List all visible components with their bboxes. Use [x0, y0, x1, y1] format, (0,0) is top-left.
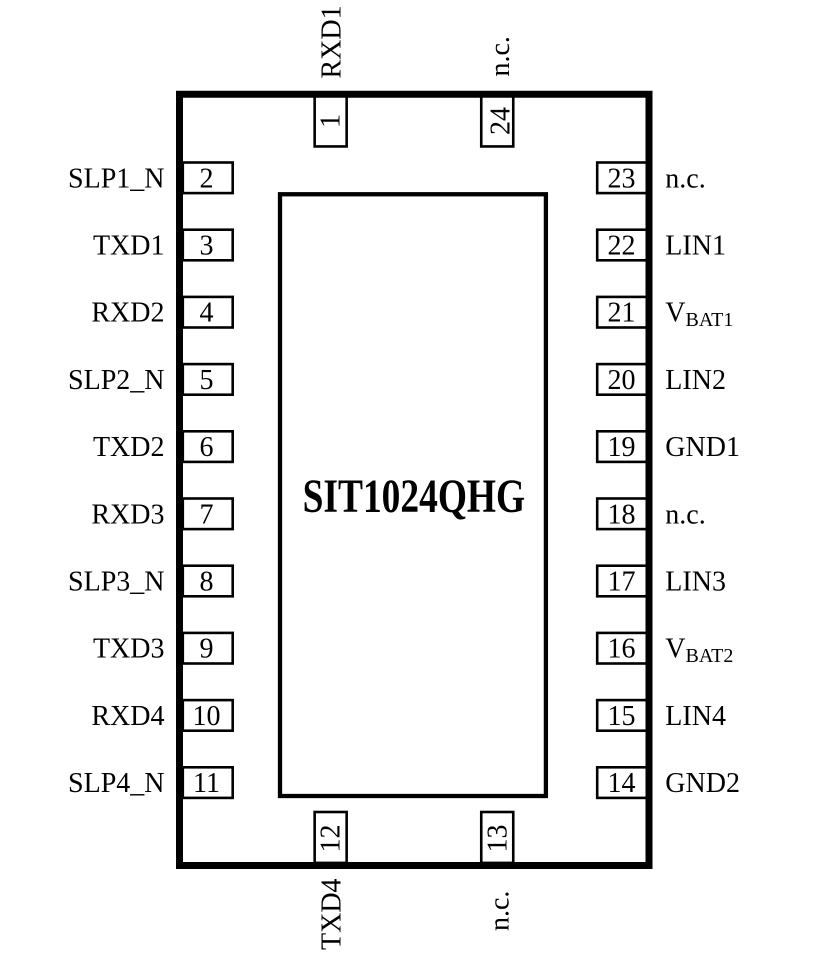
svg-text:1: 1	[316, 114, 347, 128]
svg-text:LIN1: LIN1	[665, 231, 726, 262]
svg-text:RXD3: RXD3	[91, 499, 164, 530]
svg-text:5: 5	[200, 365, 214, 396]
svg-text:9: 9	[200, 634, 214, 665]
svg-text:18: 18	[608, 499, 636, 530]
svg-text:6: 6	[200, 432, 214, 463]
svg-text:SIT1024QHG: SIT1024QHG	[303, 471, 526, 523]
svg-text:8: 8	[200, 567, 214, 598]
svg-text:LIN3: LIN3	[665, 567, 726, 598]
svg-text:4: 4	[200, 298, 214, 329]
svg-text:n.c.: n.c.	[665, 499, 705, 530]
svg-text:24: 24	[485, 107, 516, 135]
svg-text:RXD4: RXD4	[91, 701, 164, 732]
svg-text:GND2: GND2	[665, 768, 740, 799]
svg-text:12: 12	[316, 825, 347, 853]
svg-text:TXD2: TXD2	[93, 432, 165, 463]
svg-text:SLP4_N: SLP4_N	[68, 768, 164, 799]
svg-text:7: 7	[200, 499, 214, 530]
svg-text:14: 14	[608, 768, 636, 799]
svg-text:20: 20	[608, 365, 636, 396]
svg-text:19: 19	[608, 432, 636, 463]
svg-text:TXD3: TXD3	[93, 634, 165, 665]
svg-text:GND1: GND1	[665, 432, 740, 463]
svg-text:SLP3_N: SLP3_N	[68, 567, 164, 598]
svg-text:SLP1_N: SLP1_N	[68, 163, 164, 194]
svg-text:11: 11	[193, 768, 220, 799]
svg-text:22: 22	[608, 231, 636, 262]
svg-text:23: 23	[608, 163, 636, 194]
svg-text:2: 2	[200, 163, 214, 194]
svg-text:16: 16	[608, 634, 636, 665]
svg-text:RXD2: RXD2	[91, 298, 164, 329]
svg-text:15: 15	[608, 701, 636, 732]
svg-text:TXD1: TXD1	[93, 231, 165, 262]
svg-text:10: 10	[193, 701, 221, 732]
svg-text:RXD1: RXD1	[317, 5, 348, 78]
svg-text:17: 17	[608, 567, 636, 598]
svg-text:3: 3	[200, 231, 214, 262]
svg-text:LIN2: LIN2	[665, 365, 726, 396]
svg-text:TXD4: TXD4	[317, 878, 348, 950]
svg-text:LIN4: LIN4	[665, 701, 726, 732]
svg-text:n.c.: n.c.	[484, 891, 515, 931]
svg-text:21: 21	[608, 298, 636, 329]
svg-text:n.c.: n.c.	[665, 163, 705, 194]
svg-text:13: 13	[482, 825, 513, 853]
svg-text:SLP2_N: SLP2_N	[68, 365, 164, 396]
svg-text:n.c.: n.c.	[485, 36, 516, 76]
